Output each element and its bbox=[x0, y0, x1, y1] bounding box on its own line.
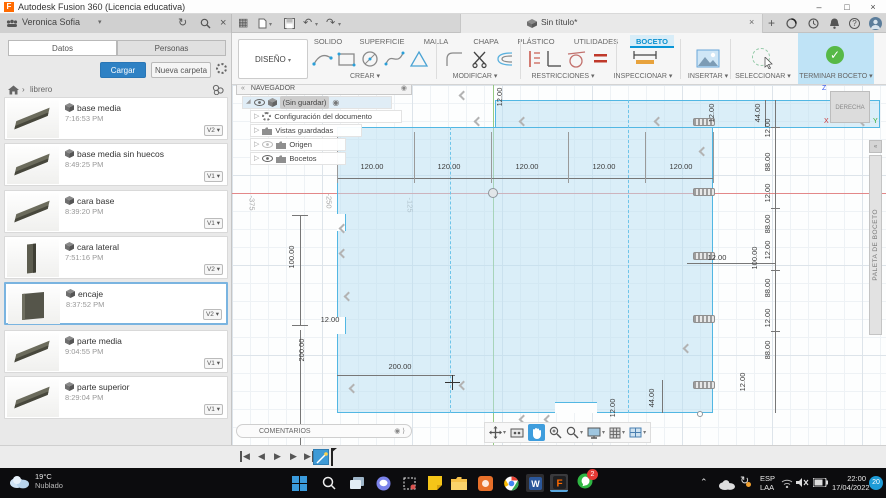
dimension-line bbox=[300, 215, 301, 325]
sketch-notch bbox=[555, 402, 597, 413]
capture-app-icon bbox=[478, 476, 493, 491]
design-workspace-menu[interactable]: DISEÑO ▾ bbox=[238, 39, 308, 79]
insert-image-icon[interactable] bbox=[696, 49, 720, 68]
display-settings-button[interactable]: ▾ bbox=[587, 427, 605, 439]
zoom-window-button[interactable]: ▾ bbox=[566, 426, 583, 439]
viewcube-y-axis-label: Y bbox=[873, 118, 878, 125]
timeline-skip-start-button[interactable]: ◀ bbox=[240, 451, 250, 462]
file-name: base media sin huecos bbox=[77, 149, 164, 159]
avatar[interactable] bbox=[869, 17, 882, 30]
design-caret: ▾ bbox=[288, 58, 291, 64]
comments-add-icon[interactable]: ◉ ⟩ bbox=[394, 425, 411, 438]
dim-label[interactable]: 12.00 bbox=[739, 364, 747, 400]
file-thumbnail bbox=[7, 333, 59, 371]
dim-label[interactable]: 12.00 bbox=[496, 85, 504, 115]
viewcube-x-axis-label: X bbox=[824, 118, 829, 125]
sketch-feature-icon bbox=[315, 451, 329, 465]
file-thumbnail bbox=[7, 100, 59, 138]
group-terminar-boceto[interactable]: TERMINAR BOCETO ▾ bbox=[796, 72, 876, 80]
home-icon[interactable] bbox=[8, 85, 19, 95]
component-cube-icon bbox=[268, 98, 277, 107]
fusion360-window: F Autodesk Fusion 360 (Licencia educativ… bbox=[0, 0, 886, 498]
clock-widget[interactable]: 22:00 17/04/2022 bbox=[832, 474, 866, 492]
dim-label[interactable]: 12.00 bbox=[764, 300, 772, 336]
extension-line bbox=[568, 132, 569, 183]
arc-tool-icon[interactable] bbox=[312, 49, 334, 69]
ribbon-separator bbox=[520, 39, 521, 79]
title-bar: F Autodesk Fusion 360 (Licencia educativ… bbox=[0, 0, 886, 14]
search-icon[interactable] bbox=[200, 18, 211, 29]
wifi-icon[interactable] bbox=[781, 478, 793, 488]
file-card-encaje[interactable]: encaje 8:37:52 PM V2 ▾ bbox=[4, 282, 228, 325]
look-at-button[interactable] bbox=[510, 427, 524, 438]
folder-icon bbox=[276, 141, 286, 149]
file-time: 7:16:53 PM bbox=[65, 114, 103, 123]
activate-radio-icon[interactable]: ◉ bbox=[332, 96, 339, 109]
perpendicular-constraint-icon[interactable] bbox=[544, 49, 564, 69]
file-thumbnail bbox=[7, 193, 59, 231]
component-cube-icon bbox=[65, 196, 74, 205]
new-folder-button[interactable]: Nueva carpeta bbox=[151, 62, 211, 78]
component-cube-icon bbox=[65, 103, 74, 112]
user-name: Veronica Sofia bbox=[22, 17, 80, 27]
grid-caret[interactable]: ▾ bbox=[622, 429, 625, 436]
app-chrome-bar: Veronica Sofia ▾ ↻ × ▦ ▾ ↶ ▾ ↷ ▾ Sin tít… bbox=[0, 14, 886, 33]
viewports-icon bbox=[629, 427, 642, 438]
whatsapp-button[interactable]: 2 bbox=[576, 474, 594, 492]
sticky-notes-button[interactable] bbox=[426, 474, 444, 492]
grid-label: -375 bbox=[248, 196, 257, 220]
dim-label[interactable]: 12.00 bbox=[764, 110, 772, 146]
expand-caret-icon[interactable]: ▷ bbox=[254, 110, 259, 123]
teams-chat-button[interactable] bbox=[374, 474, 392, 492]
dimension-tick bbox=[771, 127, 780, 128]
sticky-note-icon bbox=[428, 476, 442, 490]
browser-title: NAVEGADOR bbox=[247, 85, 295, 92]
browser-options-icon[interactable]: ◉ bbox=[401, 85, 411, 95]
display-caret[interactable]: ▾ bbox=[602, 429, 605, 436]
grid-menu-icon[interactable]: ▦ bbox=[238, 14, 248, 33]
tree-item-label: Vistas guardadas bbox=[275, 124, 333, 137]
snip-icon bbox=[402, 476, 417, 491]
slot-feature[interactable] bbox=[693, 188, 715, 196]
file-name: base media bbox=[77, 103, 121, 113]
timeline-step-forward-button[interactable]: ▶ bbox=[290, 451, 297, 462]
file-card-base-media-sin-huecos[interactable]: base media sin huecos 8:49:25 PM V1 ▾ bbox=[4, 143, 228, 186]
grid-snap-button[interactable]: ▾ bbox=[609, 427, 625, 439]
circle-tool-icon[interactable] bbox=[360, 49, 382, 69]
dim-label[interactable]: 44.00 bbox=[754, 95, 762, 131]
folder-icon bbox=[276, 155, 286, 163]
file-explorer-button[interactable] bbox=[450, 474, 468, 492]
dimension-line bbox=[662, 380, 663, 413]
equal-constraint-icon[interactable] bbox=[592, 49, 610, 69]
share-people-icon[interactable] bbox=[212, 84, 224, 95]
help-icon[interactable]: ? bbox=[849, 18, 860, 29]
version-chip[interactable]: V2 ▾ bbox=[203, 309, 222, 320]
construction-line[interactable] bbox=[628, 100, 629, 413]
pan-hand-button-active[interactable] bbox=[528, 424, 545, 441]
grid-icon bbox=[609, 427, 621, 439]
onedrive-cloud-icon[interactable] bbox=[718, 478, 736, 490]
version-chip[interactable]: V2 ▾ bbox=[204, 125, 223, 136]
collapse-icon[interactable]: « bbox=[237, 85, 245, 92]
tab-chapa[interactable]: CHAPA bbox=[458, 35, 514, 48]
file-time: 8:29:04 PM bbox=[65, 393, 103, 402]
palette-expand-icon[interactable]: « bbox=[869, 140, 882, 153]
timeline-playhead-flag bbox=[331, 448, 337, 453]
weather-temp: 19°C bbox=[35, 472, 63, 481]
windows-logo-icon bbox=[292, 476, 307, 491]
breadcrumb[interactable]: librero bbox=[30, 85, 52, 94]
dim-label[interactable]: 12.00 bbox=[609, 390, 617, 426]
version-chip[interactable]: V1 ▾ bbox=[204, 171, 223, 182]
group-modificar[interactable]: MODIFICAR ▾ bbox=[435, 72, 515, 80]
task-view-button[interactable] bbox=[348, 474, 366, 492]
snipping-tool-button[interactable] bbox=[400, 474, 418, 492]
comments-bar[interactable]: COMENTARIOS ◉ ⟩ bbox=[236, 424, 412, 438]
version-chip[interactable]: V1 ▾ bbox=[204, 404, 223, 415]
expand-caret-icon[interactable]: ▷ bbox=[254, 124, 259, 137]
lang-line1: ESP bbox=[760, 474, 775, 483]
file-name: parte media bbox=[77, 336, 122, 346]
tree-item-origen[interactable]: ▷ Origen bbox=[250, 138, 346, 151]
zoom-caret[interactable]: ▾ bbox=[580, 429, 583, 436]
sync-icon[interactable]: ↻ bbox=[740, 474, 749, 487]
chat-bubble-icon bbox=[376, 476, 391, 491]
windows-taskbar: 19°C Nublado W bbox=[0, 468, 886, 498]
chrome-button[interactable] bbox=[502, 474, 520, 492]
taskbar-search-button[interactable] bbox=[320, 474, 338, 492]
monitor-icon bbox=[587, 427, 601, 439]
polygon-tool-icon[interactable] bbox=[408, 49, 430, 69]
eye-icon[interactable] bbox=[254, 99, 265, 106]
expand-icon[interactable]: ◢ bbox=[246, 96, 251, 109]
magnifier-plus-icon bbox=[549, 426, 562, 439]
undo-caret[interactable]: ▾ bbox=[315, 21, 318, 28]
maximize-button[interactable]: □ bbox=[834, 0, 860, 14]
refresh-icon[interactable]: ↻ bbox=[178, 14, 187, 33]
notifications-bell-icon[interactable] bbox=[829, 18, 840, 29]
slot-feature[interactable] bbox=[693, 381, 715, 389]
orbit-caret[interactable]: ▾ bbox=[503, 429, 506, 436]
file-name: parte superior bbox=[77, 382, 129, 392]
gear-icon bbox=[262, 112, 271, 121]
view-cube[interactable]: DERECHA bbox=[830, 91, 870, 123]
file-thumbnail bbox=[8, 286, 60, 324]
eye-icon[interactable] bbox=[262, 155, 273, 162]
viewports-caret[interactable]: ▾ bbox=[643, 429, 646, 436]
chevron-down-icon[interactable]: ▾ bbox=[98, 18, 102, 26]
trim-scissors-icon[interactable] bbox=[470, 49, 492, 69]
document-tab[interactable]: Sin título* × bbox=[460, 14, 763, 33]
breadcrumb-chevron: › bbox=[22, 85, 25, 94]
file-name: encaje bbox=[78, 289, 103, 299]
extension-line bbox=[414, 132, 415, 183]
close-panel-icon[interactable]: × bbox=[220, 14, 226, 33]
fillet-tool-icon[interactable] bbox=[444, 49, 466, 69]
fusion360-icon: F bbox=[553, 476, 566, 489]
svg-text:W: W bbox=[531, 479, 540, 489]
browser-panel-header[interactable]: « NAVEGADOR ◉ bbox=[236, 85, 412, 95]
expand-caret-icon[interactable]: ▷ bbox=[254, 152, 259, 165]
tab-boceto[interactable]: BOCETO bbox=[630, 35, 674, 48]
component-cube-icon bbox=[65, 336, 74, 345]
file-list: base media 7:16:53 PM V2 ▾ base media si… bbox=[4, 97, 228, 463]
dimension-tick bbox=[292, 215, 308, 216]
timeline-play-button[interactable]: ▶ bbox=[274, 451, 281, 462]
spline-tool-icon[interactable] bbox=[384, 49, 406, 69]
eye-off-icon[interactable] bbox=[262, 141, 273, 148]
file-time: 8:49:25 PM bbox=[65, 160, 103, 169]
svg-text:F: F bbox=[556, 478, 562, 489]
dim-label[interactable]: 44.00 bbox=[648, 380, 656, 416]
dim-label[interactable]: 100.00 bbox=[288, 239, 296, 275]
app-title: Autodesk Fusion 360 (Licencia educativa) bbox=[18, 2, 185, 12]
language-indicator[interactable]: ESP LAA bbox=[760, 474, 775, 492]
group-seleccionar[interactable]: SELECCIONAR ▾ bbox=[723, 72, 803, 80]
extension-line bbox=[491, 132, 492, 183]
crosshair-cursor bbox=[452, 375, 453, 390]
new-tab-icon[interactable]: + bbox=[768, 14, 775, 33]
folder-icon bbox=[451, 477, 467, 490]
measure-tool-icon[interactable] bbox=[632, 49, 658, 69]
job-status-icon[interactable] bbox=[786, 18, 797, 29]
slot-feature[interactable] bbox=[693, 315, 715, 323]
dim-label[interactable]: 12.00 bbox=[764, 232, 772, 268]
data-panel: Datos Personas Cargar Nueva carpeta › li… bbox=[0, 33, 232, 470]
viewports-button[interactable]: ▾ bbox=[629, 427, 646, 438]
tree-item-label: Origen bbox=[289, 138, 312, 151]
redo-icon[interactable]: ↷ bbox=[326, 14, 335, 33]
timeline-bar: ◀ ◀ ▶ ▶ ▶ bbox=[0, 445, 886, 468]
document-close-icon[interactable]: × bbox=[749, 17, 754, 27]
component-cube-icon bbox=[65, 149, 74, 158]
expand-caret-icon[interactable]: ▷ bbox=[254, 138, 259, 151]
file-card-parte-media[interactable]: parte media 9:04:55 PM V1 ▾ bbox=[4, 330, 228, 373]
file-thumbnail bbox=[7, 379, 59, 417]
tab-solido[interactable]: SOLIDO bbox=[300, 35, 356, 48]
group-restricciones[interactable]: RESTRICCIONES ▾ bbox=[523, 72, 603, 80]
version-chip[interactable]: V1 ▾ bbox=[204, 218, 223, 229]
browser-panel: « NAVEGADOR ◉ ◢ (Sin guardar) ◉ ▷ Config… bbox=[236, 85, 412, 165]
dim-label[interactable]: 100.00 bbox=[751, 240, 759, 276]
sketch-palette-label: PALETA DE BOCETO bbox=[872, 209, 879, 281]
battery-icon[interactable] bbox=[813, 478, 828, 487]
dimension-line bbox=[337, 178, 713, 179]
sketch-dimension-icon[interactable] bbox=[526, 49, 544, 69]
whatsapp-badge: 2 bbox=[587, 469, 598, 480]
grid-label: -250 bbox=[325, 194, 334, 218]
file-card-cara-lateral[interactable]: cara lateral 7:51:16 PM V2 ▾ bbox=[4, 236, 228, 279]
fusion360-taskbar-button-active[interactable]: F bbox=[550, 474, 568, 492]
finish-sketch-check-icon: ✓ bbox=[826, 46, 844, 64]
offset-tool-icon[interactable] bbox=[494, 49, 516, 69]
tangent-constraint-icon[interactable] bbox=[566, 49, 588, 69]
file-name: cara lateral bbox=[77, 242, 119, 252]
dimension-line bbox=[775, 100, 776, 413]
orbit-button[interactable]: ▾ bbox=[489, 426, 506, 439]
undo-icon[interactable]: ↶ bbox=[303, 14, 312, 33]
dim-label[interactable]: 12.00 bbox=[699, 254, 735, 262]
sketch-endpoint[interactable] bbox=[697, 411, 703, 417]
ribbon-toolbar: DISEÑO ▾ SOLIDO SUPERFICIE MALLA CHAPA P… bbox=[232, 33, 886, 85]
folder-icon bbox=[262, 127, 272, 135]
tree-item-label: Bocetos bbox=[289, 152, 316, 165]
file-time: 8:39:20 PM bbox=[65, 207, 103, 216]
tab-personas[interactable]: Personas bbox=[117, 40, 226, 56]
dim-label[interactable]: 120.00 bbox=[431, 163, 467, 171]
cloud-icon bbox=[8, 473, 30, 489]
file-time: 9:04:55 PM bbox=[65, 347, 103, 356]
comments-label: COMENTARIOS bbox=[237, 428, 311, 435]
tree-item-bocetos[interactable]: ▷ Bocetos bbox=[250, 152, 346, 165]
file-card-base-media[interactable]: base media 7:16:53 PM V2 ▾ bbox=[4, 97, 228, 140]
start-button[interactable] bbox=[290, 474, 308, 492]
word-icon: W bbox=[529, 477, 542, 490]
weather-widget[interactable]: 19°C Nublado bbox=[8, 472, 63, 490]
weather-desc: Nublado bbox=[35, 481, 63, 490]
file-thumbnail bbox=[7, 239, 59, 277]
file-icon[interactable] bbox=[258, 18, 267, 29]
sketch-canvas[interactable]: -375 -250 -125 bbox=[232, 85, 886, 445]
dim-label[interactable]: 12.00 bbox=[312, 316, 348, 324]
file-name: cara base bbox=[77, 196, 114, 206]
file-card-cara-base[interactable]: cara base 8:39:20 PM V1 ▾ bbox=[4, 190, 228, 233]
group-crear[interactable]: CREAR ▾ bbox=[325, 72, 405, 80]
navigation-toolbar: ▾ ▾ ▾ ▾ bbox=[484, 422, 651, 443]
dim-label[interactable]: 120.00 bbox=[586, 163, 622, 171]
design-workspace-label: DISEÑO bbox=[255, 55, 286, 64]
dimension-tick bbox=[292, 325, 308, 326]
save-icon[interactable] bbox=[284, 18, 295, 29]
tree-root-sin-guardar[interactable]: ◢ (Sin guardar) ◉ bbox=[242, 96, 392, 109]
hand-icon bbox=[531, 427, 542, 439]
file-thumbnail bbox=[7, 146, 59, 184]
search-icon bbox=[322, 476, 336, 490]
document-title: Sin título* bbox=[541, 17, 577, 27]
pan-arrows-icon bbox=[489, 426, 502, 439]
dim-label[interactable]: 120.00 bbox=[663, 163, 699, 171]
dim-label[interactable]: 200.00 bbox=[298, 332, 306, 368]
camera-box-icon bbox=[510, 427, 524, 438]
file-card-parte-superior[interactable]: parte superior 8:29:04 PM V1 ▾ bbox=[4, 376, 228, 419]
redo-caret[interactable]: ▾ bbox=[338, 21, 341, 28]
dim-label[interactable]: 88.00 bbox=[764, 332, 772, 368]
dim-label[interactable]: 120.00 bbox=[509, 163, 545, 171]
component-cube-icon bbox=[65, 242, 74, 251]
close-button[interactable]: × bbox=[860, 0, 886, 14]
component-cube-icon bbox=[65, 382, 74, 391]
dimension-tick bbox=[771, 331, 780, 332]
people-icon bbox=[6, 19, 18, 28]
tree-item-label: Configuración del documento bbox=[274, 110, 372, 123]
tree-item-configuracion[interactable]: ▷ Configuración del documento bbox=[250, 110, 402, 123]
lang-line2: LAA bbox=[760, 483, 775, 492]
dimension-line bbox=[687, 263, 775, 264]
tab-datos[interactable]: Datos bbox=[8, 40, 117, 56]
clock-icon[interactable] bbox=[808, 18, 819, 29]
file-time: 8:37:52 PM bbox=[66, 300, 104, 309]
task-view-icon bbox=[350, 476, 365, 490]
file-menu-caret[interactable]: ▾ bbox=[269, 21, 272, 28]
word-button[interactable]: W bbox=[526, 474, 544, 492]
rectangle-tool-icon[interactable] bbox=[336, 49, 358, 69]
magnifier-icon bbox=[566, 426, 579, 439]
dim-label[interactable]: 200.00 bbox=[382, 363, 418, 371]
viewcube-face-label: DERECHA bbox=[835, 105, 864, 111]
minimize-button[interactable]: – bbox=[806, 0, 832, 14]
constraint-icon[interactable] bbox=[459, 91, 469, 101]
capture-app-button[interactable] bbox=[476, 474, 494, 492]
dimension-tick bbox=[771, 270, 780, 271]
version-chip[interactable]: V1 ▾ bbox=[204, 358, 223, 369]
document-cube-icon bbox=[527, 19, 537, 28]
profile-section[interactable]: Veronica Sofia ▾ ↻ × bbox=[0, 14, 232, 33]
version-chip[interactable]: V2 ▾ bbox=[204, 264, 223, 275]
upload-button[interactable]: Cargar bbox=[100, 62, 146, 78]
timeline-sketch-feature[interactable] bbox=[313, 449, 329, 465]
settings-gear-icon[interactable] bbox=[216, 63, 227, 74]
dimension-line bbox=[337, 375, 455, 376]
chrome-icon bbox=[504, 476, 519, 491]
tree-item-vistas-guardadas[interactable]: ▷ Vistas guardadas bbox=[250, 124, 362, 137]
zoom-button[interactable] bbox=[549, 426, 562, 439]
constraint-icon[interactable] bbox=[474, 117, 484, 127]
timeline-step-back-button[interactable]: ◀ bbox=[258, 451, 265, 462]
tab-plastico[interactable]: PLÁSTICO bbox=[508, 35, 564, 48]
dim-label[interactable]: 12.00 bbox=[708, 95, 716, 131]
sketch-palette-collapsed[interactable]: PALETA DE BOCETO bbox=[869, 155, 882, 335]
file-time: 7:51:16 PM bbox=[65, 253, 103, 262]
root-label: (Sin guardar) bbox=[280, 96, 330, 109]
dimension-tick bbox=[771, 208, 780, 209]
tray-expand-icon[interactable]: ⌃ bbox=[700, 477, 708, 488]
origin-point[interactable] bbox=[488, 188, 498, 198]
tab-superficie[interactable]: SUPERFICIE bbox=[354, 35, 410, 48]
speaker-muted-icon[interactable] bbox=[796, 477, 809, 488]
tray-date: 17/04/2022 bbox=[832, 483, 866, 492]
notification-count-badge[interactable]: 20 bbox=[869, 476, 883, 490]
sketch-profile-top-strip[interactable] bbox=[495, 100, 880, 128]
extension-line bbox=[645, 132, 646, 183]
tray-time: 22:00 bbox=[832, 474, 866, 483]
component-cube-icon bbox=[66, 289, 75, 298]
extension-line bbox=[713, 132, 714, 183]
viewcube-z-axis-label: Z bbox=[822, 85, 826, 92]
cursor-icon bbox=[764, 57, 774, 69]
fusion-logo-icon: F bbox=[4, 2, 14, 12]
